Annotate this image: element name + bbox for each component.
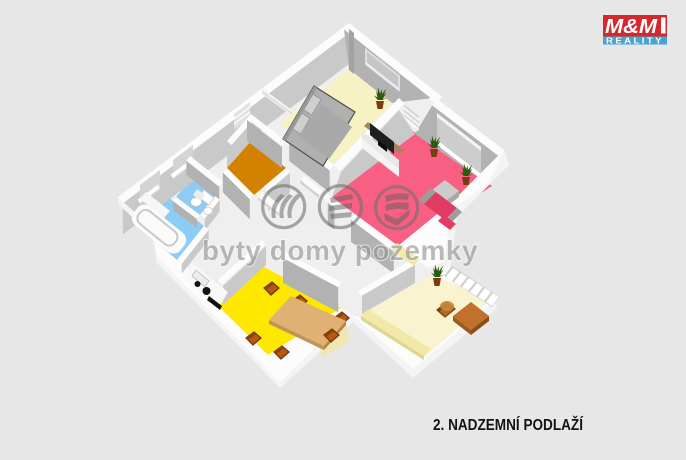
svg-text:M&M: M&M [605, 16, 658, 38]
svg-text:REALITY: REALITY [606, 37, 664, 46]
svg-text:byty domy pozemky: byty domy pozemky [202, 235, 478, 266]
svg-text:2. NADZEMNÍ PODLAŽÍ: 2. NADZEMNÍ PODLAŽÍ [433, 416, 584, 434]
